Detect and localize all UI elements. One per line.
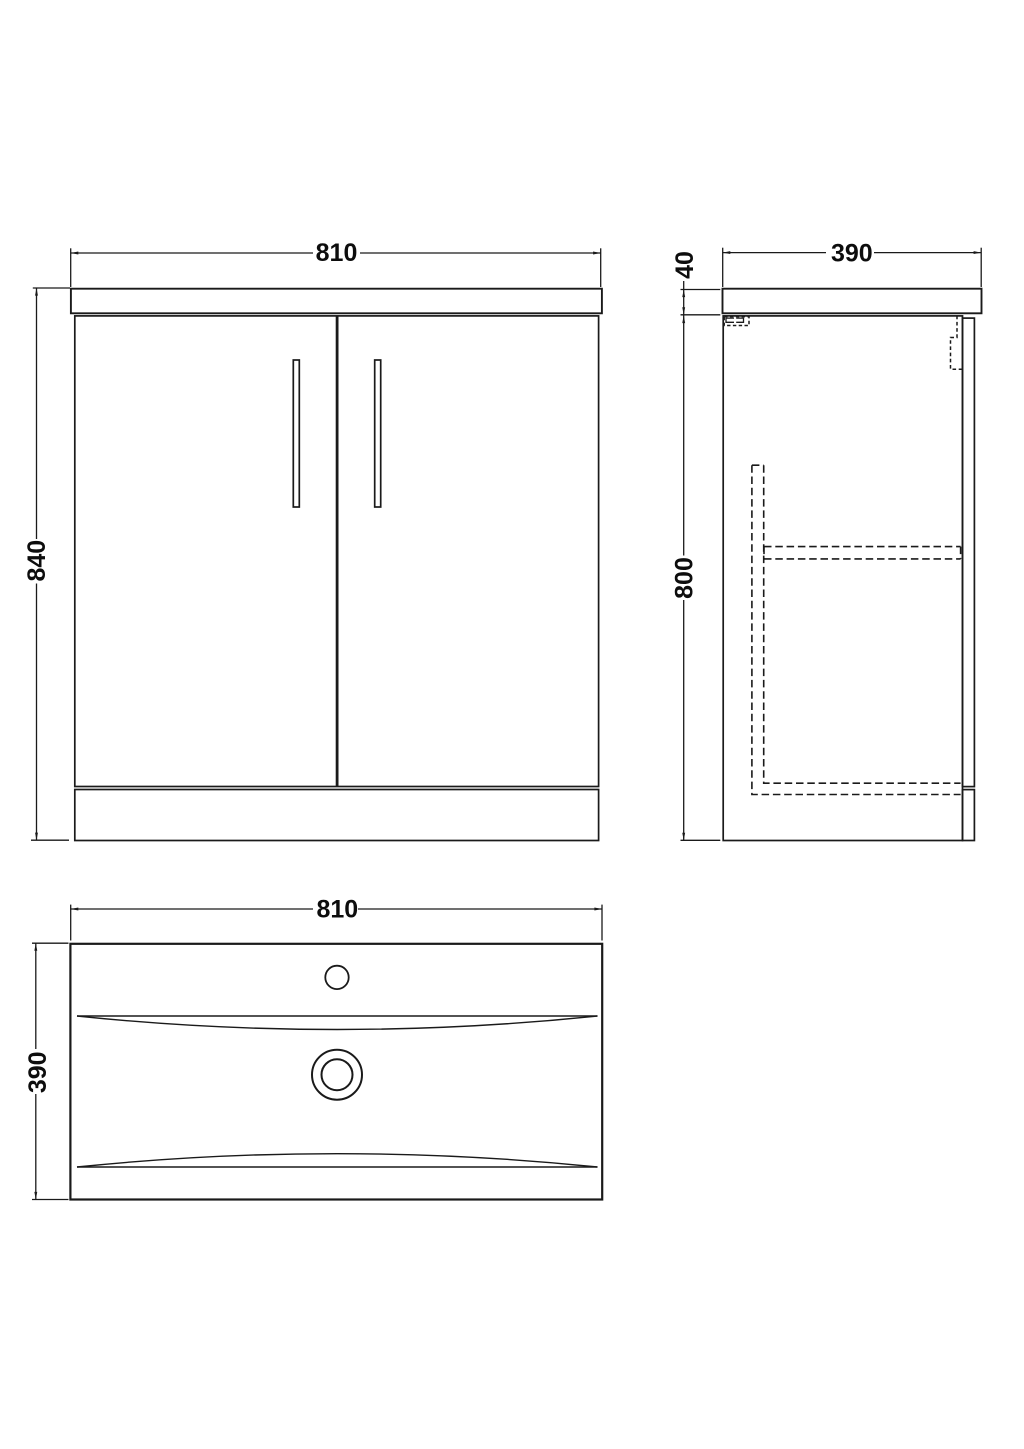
svg-text:390: 390 <box>831 239 873 267</box>
svg-text:810: 810 <box>316 896 358 924</box>
svg-text:840: 840 <box>23 540 51 582</box>
svg-text:800: 800 <box>671 557 699 599</box>
svg-text:810: 810 <box>316 239 358 267</box>
svg-text:40: 40 <box>671 251 699 279</box>
svg-text:390: 390 <box>24 1051 52 1093</box>
